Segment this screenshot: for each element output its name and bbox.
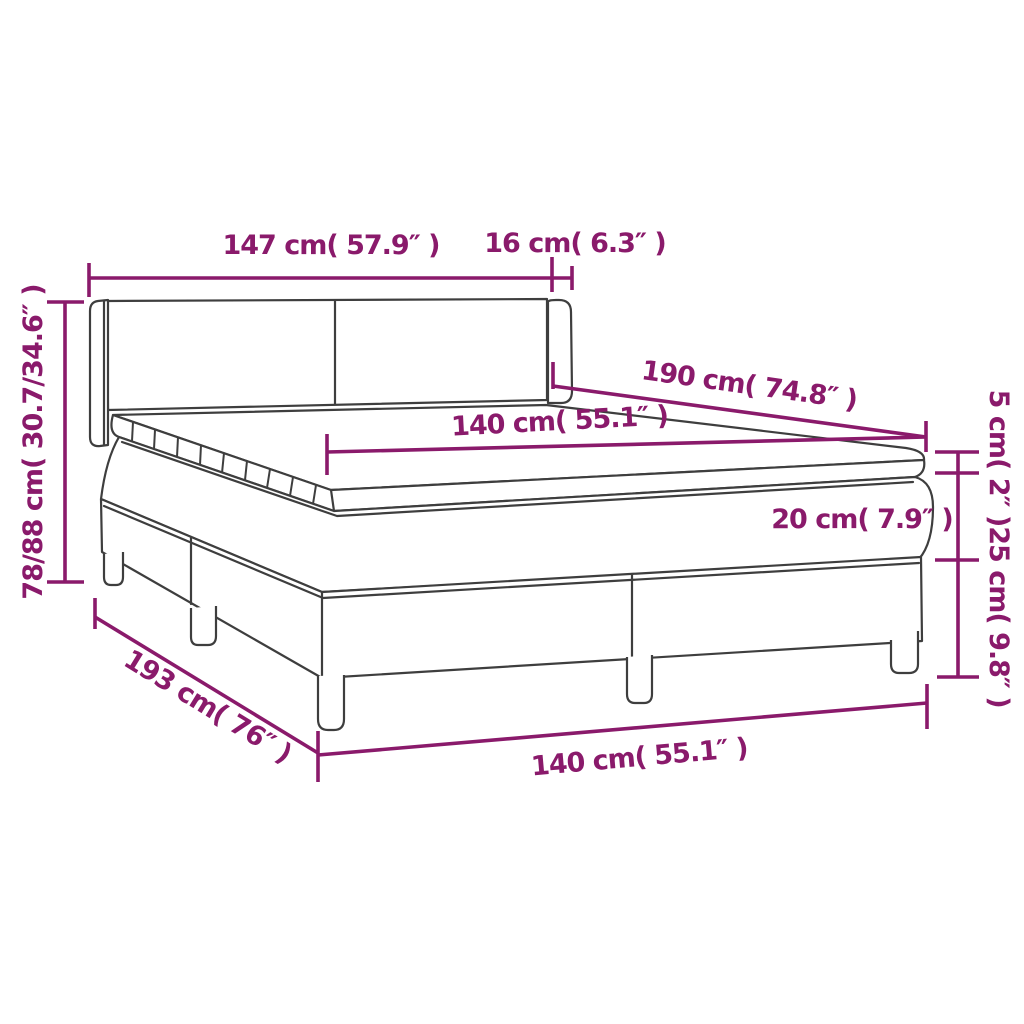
dimension-label: 140 cm( 55.1″ ) — [530, 733, 749, 783]
dimension-label: 193 cm( 76″ ) — [118, 644, 296, 770]
dimension-label: 78/88 cm( 30.7/34.6″ ) — [18, 284, 49, 599]
bed-leg — [627, 655, 652, 703]
bed-leg — [191, 606, 216, 645]
dim-bed-width-floor: 140 cm( 55.1″ ) — [318, 684, 927, 782]
headboard-left-wing — [90, 300, 108, 446]
headboard-panel — [107, 299, 547, 410]
dim-headboard-height: 78/88 cm( 30.7/34.6″ ) — [18, 284, 84, 599]
bed-leg — [318, 675, 344, 730]
bed-dimension-diagram: 147 cm( 57.9″ ) 16 cm( 6.3″ ) 78/88 cm( … — [0, 0, 1024, 1024]
dimension-label: 5 cm( 2″ ) — [983, 390, 1014, 527]
dimension-label: 20 cm( 7.9″ ) — [771, 504, 952, 535]
bed-leg — [104, 552, 123, 585]
dimension-label: 25 cm( 9.8″ ) — [983, 526, 1014, 707]
dim-headboard-width: 147 cm( 57.9″ ) 16 cm( 6.3″ ) — [89, 228, 666, 297]
diagram-canvas: 147 cm( 57.9″ ) 16 cm( 6.3″ ) 78/88 cm( … — [0, 0, 1024, 1024]
dimension-label: 16 cm( 6.3″ ) — [484, 228, 665, 259]
dimension-label: 147 cm( 57.9″ ) — [222, 230, 439, 261]
dimension-label: 190 cm( 74.8″ ) — [640, 355, 859, 416]
